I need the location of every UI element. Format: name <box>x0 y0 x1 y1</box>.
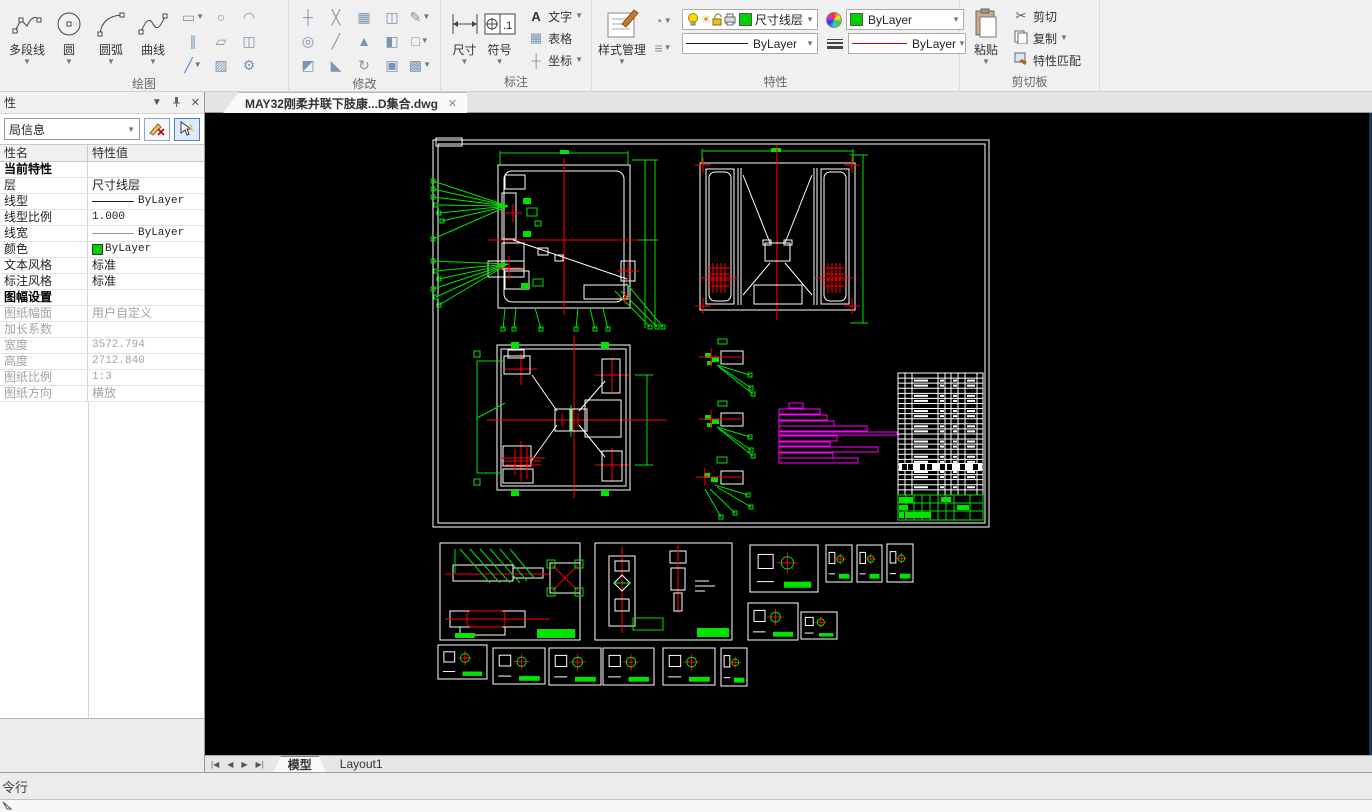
chevron-down-icon: ▼ <box>149 58 157 66</box>
property-name: 图纸比例 <box>0 370 88 385</box>
circle-icon <box>54 7 84 41</box>
coordinate-label: 坐标 <box>548 52 572 69</box>
printer-icon <box>723 13 737 26</box>
tab-model[interactable]: 模型 <box>274 756 326 772</box>
dimension-label: 尺寸 <box>453 41 477 58</box>
text-label: 文字 <box>548 8 572 25</box>
color-swatch <box>92 244 103 255</box>
property-row[interactable]: 标注风格标准 <box>0 274 204 290</box>
scale-icon[interactable]: □▼ <box>407 29 433 53</box>
hatch-icon[interactable]: ▨ <box>208 53 234 77</box>
property-row[interactable]: 图幅设置 <box>0 290 204 306</box>
chevron-down-icon: ▼ <box>982 58 990 66</box>
layout-tab-bar: |◀ ◀ ▶ ▶| 模型 Layout1 <box>205 755 1372 772</box>
command-prompt: 令行 <box>0 777 28 796</box>
detail-sheet <box>549 648 601 685</box>
modify-group-label: 修改 <box>289 77 440 92</box>
offset-icon[interactable]: ◧ <box>379 29 405 53</box>
explode-icon[interactable]: ▣ <box>379 53 405 77</box>
tab-layout1[interactable]: Layout1 <box>326 756 397 772</box>
property-name: 文本风格 <box>0 258 88 273</box>
annotate-group-label: 标注 <box>441 75 591 92</box>
chevron-down-icon: ▼ <box>575 56 583 64</box>
ribbon-group-annotate: 尺寸 ▼ .1 符号 ▼ A文字▼ ▦表格 ┼坐标▼ 标注 <box>441 0 592 92</box>
property-value[interactable]: 1:3 <box>88 370 204 385</box>
symbol-label: 符号 <box>488 41 512 58</box>
property-name: 宽度 <box>0 338 88 353</box>
color-swatch <box>850 13 863 26</box>
clear-override-button[interactable] <box>144 118 170 141</box>
properties-panel-title: 性 <box>4 94 16 111</box>
property-name: 图幅设置 <box>0 290 88 305</box>
linetype-sample <box>686 43 748 44</box>
tab-nav-arrows: |◀ ◀ ▶ ▶| <box>211 760 264 769</box>
property-name: 图纸方向 <box>0 386 88 401</box>
property-row[interactable]: 层尺寸线层 <box>0 178 204 194</box>
gear-icon[interactable]: ⚙ <box>236 53 262 77</box>
chevron-down-icon: ▼ <box>107 58 115 66</box>
style-manager-label: 样式管理 <box>598 41 646 58</box>
chevron-down-icon: ▼ <box>575 12 583 20</box>
property-name: 线型比例 <box>0 210 88 225</box>
text-button[interactable]: A文字▼ <box>525 5 585 27</box>
detail-parts <box>696 339 755 519</box>
detail-sheet <box>438 645 487 679</box>
next-tab-button[interactable]: ▶ <box>241 760 247 769</box>
property-value[interactable]: 标准 <box>88 274 204 289</box>
coordinate-button[interactable]: ┼坐标▼ <box>525 49 585 71</box>
circle-button[interactable]: 圆 ▼ <box>48 3 90 75</box>
lineweight-combo-value: ByLayer <box>912 37 956 51</box>
properties-group-label: 特性 <box>592 75 959 92</box>
property-row[interactable]: 宽度3572.794 <box>0 338 204 354</box>
chevron-down-icon: ▼ <box>804 39 814 48</box>
linetype-combo-value: ByLayer <box>753 37 797 51</box>
svg-text:.1: .1 <box>503 20 512 32</box>
trim-icon[interactable]: ╳ <box>323 5 349 29</box>
first-tab-button[interactable]: |◀ <box>211 760 219 769</box>
detail-sheet-large-1 <box>440 543 583 640</box>
detail-sheet <box>801 612 837 639</box>
property-value[interactable]: 标准 <box>88 258 204 273</box>
thaw-sun-icon: ☀ <box>701 13 711 26</box>
document-tab-title: MAY32刚柔并联下肢康...D集合.dwg <box>245 95 438 112</box>
property-name: 当前特性 <box>0 162 88 177</box>
copy-button[interactable]: 复制▼ <box>1010 27 1083 49</box>
property-value[interactable]: ByLayer <box>88 194 204 209</box>
status-strip <box>0 800 1372 812</box>
chamfer-icon[interactable]: ◣ <box>323 53 349 77</box>
drawing-canvas[interactable] <box>205 113 1372 755</box>
chevron-down-icon: ▼ <box>127 125 135 134</box>
property-row[interactable]: 线宽ByLayer <box>0 226 204 242</box>
pin-icon[interactable] <box>172 96 181 110</box>
lineweight-sample <box>852 43 907 44</box>
chevron-down-icon: ▼ <box>496 58 504 66</box>
lineweight-icon <box>826 37 844 51</box>
properties-empty-area <box>0 402 204 718</box>
hatch-edit-icon[interactable]: ▩▼ <box>407 53 433 77</box>
property-value[interactable]: 2712.840 <box>88 354 204 369</box>
detail-sheet <box>721 648 747 686</box>
property-value[interactable]: 3572.794 <box>88 338 204 353</box>
property-row[interactable]: 加长系数 <box>0 322 204 338</box>
detail-sheet <box>887 544 913 582</box>
table-button[interactable]: ▦表格 <box>525 27 585 49</box>
property-name: 线宽 <box>0 226 88 241</box>
close-icon[interactable]: ✕ <box>191 96 200 109</box>
view-top-left <box>431 150 665 331</box>
style-manager-button[interactable]: 样式管理 ▼ <box>598 3 646 75</box>
bom-table <box>898 373 983 520</box>
property-row[interactable]: 文本风格标准 <box>0 258 204 274</box>
property-name: 图纸幅面 <box>0 306 88 321</box>
text-icon: A <box>527 9 545 24</box>
property-value[interactable] <box>88 322 204 337</box>
polyline-icon <box>12 7 42 41</box>
arc-icon <box>96 7 126 41</box>
panel-footer-space <box>0 718 204 772</box>
chevron-down-icon: ▼ <box>65 58 73 66</box>
break-icon[interactable]: ◫ <box>379 5 405 29</box>
table-label: 表格 <box>548 30 572 47</box>
coordinate-icon: ┼ <box>527 53 545 68</box>
curve-tool-icon[interactable]: ◠ <box>236 5 262 29</box>
ribbon-group-draw: 多段线 ▼ 圆 ▼ 圆弧 ▼ 曲线 <box>0 0 289 92</box>
match-properties-button[interactable]: 特性匹配 <box>1010 49 1083 71</box>
property-name: 加长系数 <box>0 322 88 337</box>
style-manager-icon <box>604 7 640 41</box>
scope-select[interactable]: 局信息 ▼ <box>4 118 140 140</box>
array-icon[interactable]: ▦ <box>351 5 377 29</box>
chevron-down-icon: ▼ <box>804 15 814 24</box>
paste-button[interactable]: 粘贴 ▼ <box>966 3 1006 75</box>
property-name: 高度 <box>0 354 88 369</box>
property-name: 标注风格 <box>0 274 88 289</box>
chevron-down-icon[interactable]: ▼ <box>152 97 162 108</box>
properties-rows: 当前特性层尺寸线层线型ByLayer线型比例1.000线宽ByLayer颜色By… <box>0 162 204 402</box>
copy-icon <box>1012 30 1030 47</box>
arc-button[interactable]: 圆弧 ▼ <box>90 3 132 75</box>
linetype-combo[interactable]: ByLayer ▼ <box>682 33 818 54</box>
dimension-icon <box>450 7 480 41</box>
property-row[interactable]: 高度2712.840 <box>0 354 204 370</box>
ellipse-icon[interactable]: ○ <box>208 5 234 29</box>
match-properties-icon <box>1012 52 1030 69</box>
property-value[interactable]: ByLayer <box>88 226 204 241</box>
chevron-down-icon: ▼ <box>618 58 626 66</box>
spline-button[interactable]: 曲线 ▼ <box>132 3 174 75</box>
property-row[interactable]: 颜色ByLayer <box>0 242 204 258</box>
rotate-icon[interactable]: ↻ <box>351 53 377 77</box>
cut-label: 剪切 <box>1033 8 1057 25</box>
scope-select-value: 局信息 <box>9 121 45 138</box>
unlock-icon <box>711 13 723 27</box>
property-row[interactable]: 图纸方向横放 <box>0 386 204 402</box>
edit-icon[interactable]: ✎▼ <box>407 5 433 29</box>
chevron-down-icon: ▼ <box>23 58 31 66</box>
cursor-lightning-icon <box>178 121 196 137</box>
property-name: 层 <box>0 178 88 193</box>
polyline-label: 多段线 <box>9 41 45 58</box>
color-combo-value: ByLayer <box>868 13 912 27</box>
color-wheel-icon <box>826 12 842 28</box>
ribbon-group-properties: 样式管理 ▼ ◔▼ ≡▼ ☀ 尺寸线层 ▼ <box>592 0 960 92</box>
match-properties-label: 特性匹配 <box>1033 52 1081 69</box>
property-name: 线型 <box>0 194 88 209</box>
spline-icon <box>138 7 168 41</box>
polyline-button[interactable]: 多段线 ▼ <box>6 3 48 75</box>
column-header-value: 特性值 <box>88 145 128 161</box>
detail-sheet <box>826 545 852 582</box>
property-value[interactable]: 尺寸线层 <box>88 178 204 193</box>
mirror-icon[interactable]: ▲ <box>351 29 377 53</box>
cad-drawing <box>205 113 1372 755</box>
rectangle-icon[interactable]: ▭▼ <box>180 5 206 29</box>
property-value[interactable] <box>88 290 204 305</box>
property-value[interactable] <box>88 162 204 177</box>
draw-icon-grid: ▭▼ ∥ ╱▼ ○ ▱ ▨ ◠ ◫ ⚙ <box>180 5 262 77</box>
property-name: 颜色 <box>0 242 88 257</box>
detail-sheet <box>663 648 715 685</box>
property-row[interactable]: 当前特性 <box>0 162 204 178</box>
polygon-icon[interactable]: ▱ <box>208 29 234 53</box>
layer-on-bulb-icon <box>686 12 701 27</box>
color-combo[interactable]: ByLayer ▼ <box>846 9 964 30</box>
cut-icon: ✂ <box>1012 8 1030 24</box>
property-row[interactable]: 线型比例1.000 <box>0 210 204 226</box>
detail-sheet <box>603 648 654 685</box>
parallel-lines-icon[interactable]: ∥ <box>180 29 206 53</box>
sketch-line-icon[interactable]: ╱▼ <box>180 53 206 77</box>
symbol-button[interactable]: .1 符号 ▼ <box>482 3 517 75</box>
prev-tab-button[interactable]: ◀ <box>227 760 233 769</box>
chevron-down-icon: ▼ <box>1060 34 1068 42</box>
cut-button[interactable]: ✂剪切 <box>1010 5 1083 27</box>
spline-label: 曲线 <box>141 41 165 58</box>
symbol-icon: .1 <box>484 7 516 41</box>
detail-sheet <box>493 648 545 684</box>
property-value[interactable]: 1.000 <box>88 210 204 225</box>
circle-label: 圆 <box>63 41 75 58</box>
linetype-manager-icon[interactable]: ≡▼ <box>648 36 678 60</box>
close-icon[interactable]: ✕ <box>448 97 457 110</box>
table-icon: ▦ <box>527 30 545 46</box>
ribbon-group-modify: ┼ ◎ ◩ ╳ ╱ ◣ ▦ ▲ ↻ ◫ ◧ ▣ ✎▼ □▼ ▩▼ 修改 <box>289 0 441 92</box>
properties-filter-row: 局信息 ▼ <box>0 114 204 144</box>
move-icon[interactable]: ┼ <box>295 5 321 29</box>
chevron-down-icon: ▼ <box>950 15 960 24</box>
solid-icon[interactable]: ◫ <box>236 29 262 53</box>
column-header-name: 性名 <box>0 145 88 161</box>
pencil-x-icon <box>148 121 166 137</box>
clipboard-group-label: 剪切板 <box>960 75 1099 92</box>
layer-combo-value: 尺寸线层 <box>755 11 803 28</box>
properties-panel-titlebar: 性 ▼ ✕ <box>0 92 204 114</box>
view-middle-left <box>474 335 667 498</box>
draw-group-label: 绘图 <box>0 77 288 92</box>
layer-color-swatch <box>739 13 752 26</box>
detail-sheet <box>857 545 882 582</box>
detail-sheet-large-2 <box>595 543 732 640</box>
detail-sheet <box>748 603 798 640</box>
ribbon-group-clipboard: 粘贴 ▼ ✂剪切 复制▼ 特性匹配 剪切板 <box>960 0 1100 92</box>
dimension-button[interactable]: 尺寸 ▼ <box>447 3 482 75</box>
lineweight-combo[interactable]: ByLayer ▼ <box>848 33 966 54</box>
properties-panel: 性 ▼ ✕ 局信息 ▼ 性名 特性值 当前特性层尺寸线层线型ByLayer线型比… <box>0 92 205 772</box>
property-row[interactable]: 图纸比例1:3 <box>0 370 204 386</box>
property-value[interactable]: 横放 <box>88 386 204 401</box>
copy-label: 复制 <box>1033 30 1057 47</box>
stretch-icon[interactable]: ◩ <box>295 53 321 77</box>
extend-icon[interactable]: ╱ <box>323 29 349 53</box>
pick-object-button[interactable] <box>174 118 200 141</box>
paste-label: 粘贴 <box>974 41 998 58</box>
last-tab-button[interactable]: ▶| <box>256 760 264 769</box>
property-row[interactable]: 线型ByLayer <box>0 194 204 210</box>
property-value[interactable]: ByLayer <box>88 242 204 257</box>
paste-icon <box>972 7 1000 41</box>
layer-combo[interactable]: ☀ 尺寸线层 ▼ <box>682 9 818 30</box>
highlighted-part-magenta <box>779 403 897 463</box>
ribbon: 多段线 ▼ 圆 ▼ 圆弧 ▼ 曲线 <box>0 0 1372 92</box>
arc-label: 圆弧 <box>99 41 123 58</box>
erase-icon[interactable]: ◎ <box>295 29 321 53</box>
property-row[interactable]: 图纸幅面用户自定义 <box>0 306 204 322</box>
cursor-glyph-icon <box>2 801 16 811</box>
detail-sheet <box>750 545 818 592</box>
document-tab-strip: MAY32刚柔并联下肢康...D集合.dwg ✕ <box>205 92 1372 113</box>
command-bar[interactable]: 令行 <box>0 772 1372 800</box>
properties-table-header: 性名 特性值 <box>0 144 204 162</box>
document-tab[interactable]: MAY32刚柔并联下肢康...D集合.dwg ✕ <box>223 92 467 113</box>
property-value[interactable]: 用户自定义 <box>88 306 204 321</box>
chevron-down-icon: ▼ <box>461 58 469 66</box>
layer-tools-icon[interactable]: ◔▼ <box>648 9 678 33</box>
